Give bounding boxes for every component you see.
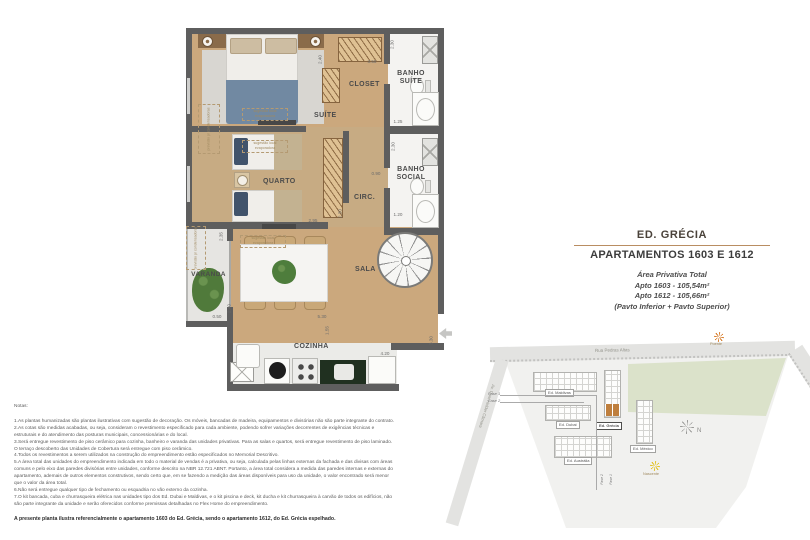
suite-lamp-icon [310, 36, 321, 47]
street-label: Rua Pedras Altas [595, 347, 630, 353]
staircase-pole [401, 256, 411, 266]
apartments-title: APARTAMENTOS 1603 E 1612 [560, 249, 784, 261]
nascente-label: Nascente [643, 472, 659, 476]
dimension: 2.40 [227, 299, 232, 319]
kitchen-counter [368, 356, 396, 384]
floorplan: previsão p/ condensadoras previsão p/ co… [186, 28, 448, 394]
room-label-line: SOCIAL [386, 174, 436, 182]
dimension: 0.90 [366, 171, 386, 176]
fase-vertical-label: Fase 2 [600, 474, 604, 485]
condenser-note: previsão p/ condensadoras [186, 226, 206, 270]
wall [227, 384, 399, 391]
note-item: 5.A área total das unidades do empreendi… [14, 460, 394, 488]
condenser-note: previsão p/ condensadoras [198, 104, 220, 154]
pillow [234, 192, 248, 216]
area-apto-1603: Apto 1603 - 105,54m² [560, 281, 784, 292]
shower-box [422, 36, 438, 64]
note-item: 7.O kit bancada, cuba e churrasqueira el… [14, 495, 394, 509]
building-grecia-highlight [605, 404, 620, 416]
room-label-banho-suite: BANHO SUÍTE [386, 70, 436, 86]
wall [384, 134, 390, 168]
building-label-dubai: Ed. Dubai [556, 421, 580, 429]
evaporator-note-text: evaporadora [241, 241, 285, 246]
kitchen-sink [334, 364, 354, 380]
notes-heading: Notas: [14, 404, 394, 411]
building-dubai [545, 405, 591, 421]
dimension: 2.40 [318, 50, 323, 70]
evaporator-note: sugestão local evaporadora [242, 140, 288, 153]
shower-box [422, 138, 438, 166]
phase-boundary-line [500, 402, 584, 403]
building-label-australia: Ed. Austrália [564, 457, 592, 465]
wall [343, 131, 349, 203]
title-divider [574, 245, 770, 246]
room-label-line: BANHO [386, 166, 436, 174]
note-item: 3.Será entregue revestimento de piso cer… [14, 440, 394, 454]
dimension: 3.55 [362, 59, 382, 64]
clock-icon [237, 175, 248, 186]
notes-footer: A presente planta ilustra referencialmen… [14, 516, 394, 523]
evaporator-note: sugestão local evaporadora [242, 108, 288, 121]
dimension: 4.20 [375, 351, 395, 356]
wall [227, 227, 233, 241]
dimension: 0.50 [207, 314, 227, 319]
evaporator-note: sugestão local evaporadora [240, 235, 286, 248]
room-label-quarto: QUARTO [263, 178, 296, 185]
building-australia [554, 436, 612, 458]
building-title: ED. GRÉCIA [560, 229, 784, 241]
pillow [230, 38, 262, 54]
poente-label: Poente [710, 342, 722, 346]
room-label-banho-social: BANHO SOCIAL [386, 166, 436, 182]
area-title: Área Privativa Total [560, 270, 784, 281]
area-info: Área Privativa Total Apto 1603 - 105,54m… [560, 270, 784, 312]
dimension: 2.35 [219, 227, 224, 247]
quarto-blanket [274, 190, 302, 222]
note-item: 6.Não será entregue qualquer tipo de fec… [14, 488, 394, 495]
nascente-sun-icon [650, 461, 660, 471]
notes-section: Notas: 1.As plantas humanizadas são plan… [14, 404, 394, 523]
fridge [236, 344, 260, 368]
wall [186, 321, 233, 327]
room-label-cozinha: COZINHA [294, 343, 329, 350]
room-label-line: BANHO [386, 70, 436, 78]
dimension: 2.30 [338, 204, 343, 224]
stove [292, 358, 318, 384]
street-av-dom-helder-camara: Av. Dom Helder Câmara [446, 358, 509, 526]
condenser-note-text: previsão p/ condensadoras [207, 107, 212, 150]
wall [186, 222, 328, 229]
area-apto-1612: Apto 1612 - 105,66m² [560, 291, 784, 302]
phase-boundary-line [596, 395, 597, 490]
room-label-suite: SUÍTE [314, 112, 337, 119]
building-label-grecia: Ed. Grécia [596, 422, 622, 430]
room-label-sala: SALA [355, 266, 376, 273]
window [187, 78, 190, 114]
poente-sun-icon [714, 332, 724, 342]
dimension: 1.25 [388, 119, 408, 124]
washer-door [269, 362, 286, 379]
room-label-varanda: VARANDA [186, 271, 231, 278]
pillow [265, 38, 297, 54]
sink-basin [416, 98, 435, 121]
suite-lamp-icon [202, 36, 213, 47]
phase-boundary-line [500, 395, 596, 396]
evaporator-note-text: evaporadora [243, 114, 287, 119]
dimension: 2.30 [391, 137, 396, 157]
condenser-note-text: previsão p/ condensadoras [194, 226, 199, 269]
sink-basin [416, 200, 435, 223]
area-pavtos: (Pavto Inferior + Pavto Superior) [560, 302, 784, 313]
siteplan-map: Rua Pedras Altas Av. Dom Helder Câmara R… [488, 332, 810, 540]
dimension: 1.55 [325, 321, 330, 341]
compass-rose-icon [680, 420, 694, 434]
quarto-tv-console [262, 224, 296, 229]
room-label-line: SUÍTE [386, 78, 436, 86]
window [187, 166, 190, 202]
wall [391, 343, 444, 350]
wall [438, 28, 444, 314]
dimension: 3.30 [429, 331, 434, 351]
dimension: 1.20 [388, 212, 408, 217]
wall [384, 126, 444, 134]
evaporator-note-text: evaporadora [243, 146, 287, 151]
plant [272, 260, 296, 284]
closet-wardrobe [322, 68, 340, 103]
entrance-arrow-icon [439, 328, 452, 339]
room-label-closet: CLOSET [349, 81, 380, 88]
building-label-mexico: Ed. México [630, 445, 656, 453]
note-item: 1.As plantas humanizadas são plantas ilu… [14, 419, 394, 426]
fase-vertical-label: Fase 1 [609, 474, 613, 485]
compass-north-label: N [697, 428, 701, 434]
note-item: 2.As cotas são medidas acabadas, ou seja… [14, 426, 394, 440]
room-label-circ: CIRC. [354, 194, 375, 201]
dimension: 2.30 [390, 35, 395, 55]
building-mexico [636, 400, 653, 444]
title-block: ED. GRÉCIA APARTAMENTOS 1603 E 1612 Área… [560, 229, 784, 312]
brochure-page: previsão p/ condensadoras previsão p/ co… [0, 0, 810, 540]
street-rua-degas: Rua Degas [788, 345, 810, 540]
fase1-label: Fase 1 [488, 391, 500, 396]
wall [384, 188, 390, 230]
dimension: 5.30 [312, 314, 332, 319]
dimension: 2.95 [303, 218, 323, 223]
fase2-label: Fase 2 [488, 398, 500, 403]
